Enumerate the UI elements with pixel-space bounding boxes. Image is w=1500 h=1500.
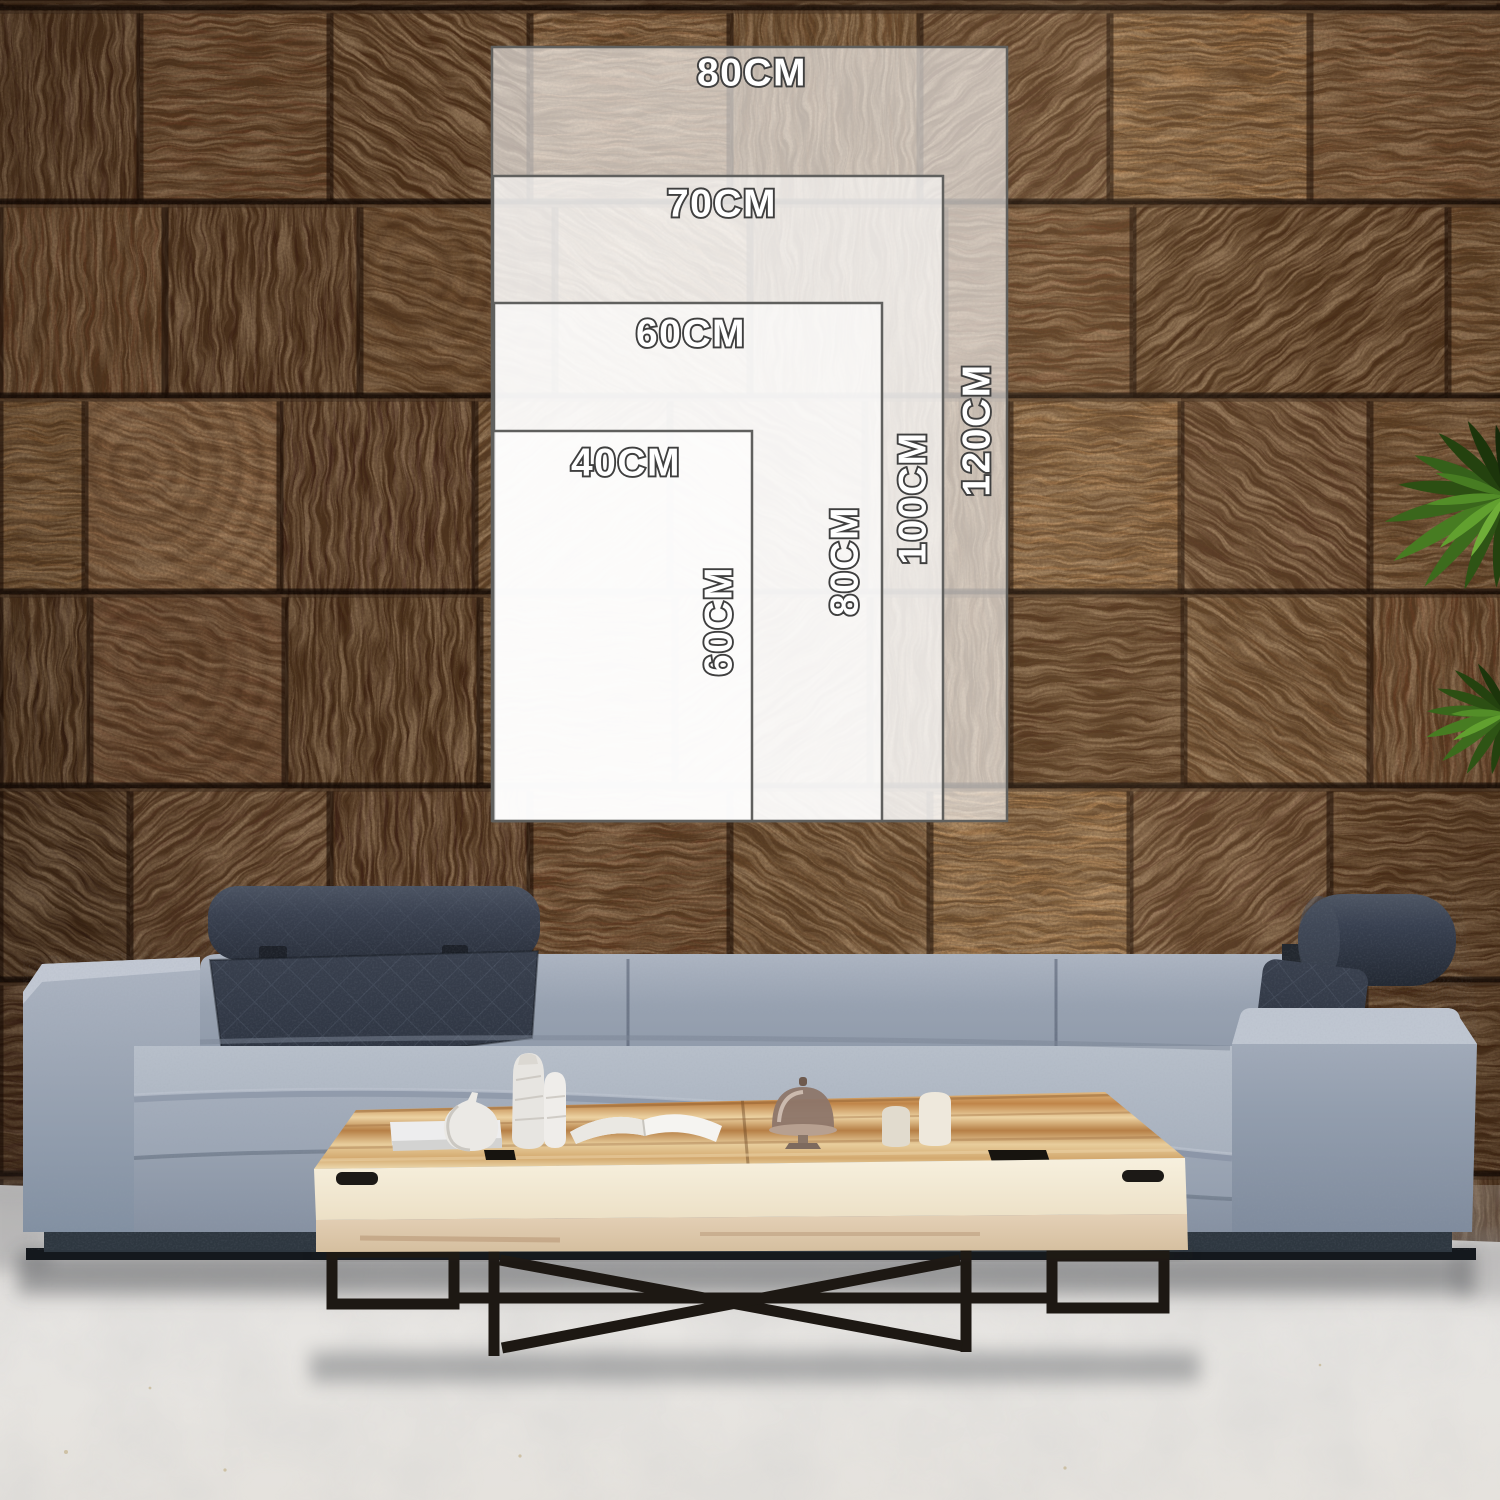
svg-text:120CM: 120CM (956, 363, 999, 496)
svg-text:100CM: 100CM (892, 431, 935, 564)
svg-text:40CM: 40CM (571, 442, 681, 485)
svg-text:70CM: 70CM (667, 183, 777, 226)
svg-text:60CM: 60CM (636, 313, 746, 356)
svg-text:80CM: 80CM (697, 52, 807, 95)
svg-text:60CM: 60CM (698, 566, 741, 676)
svg-text:80CM: 80CM (824, 506, 867, 616)
